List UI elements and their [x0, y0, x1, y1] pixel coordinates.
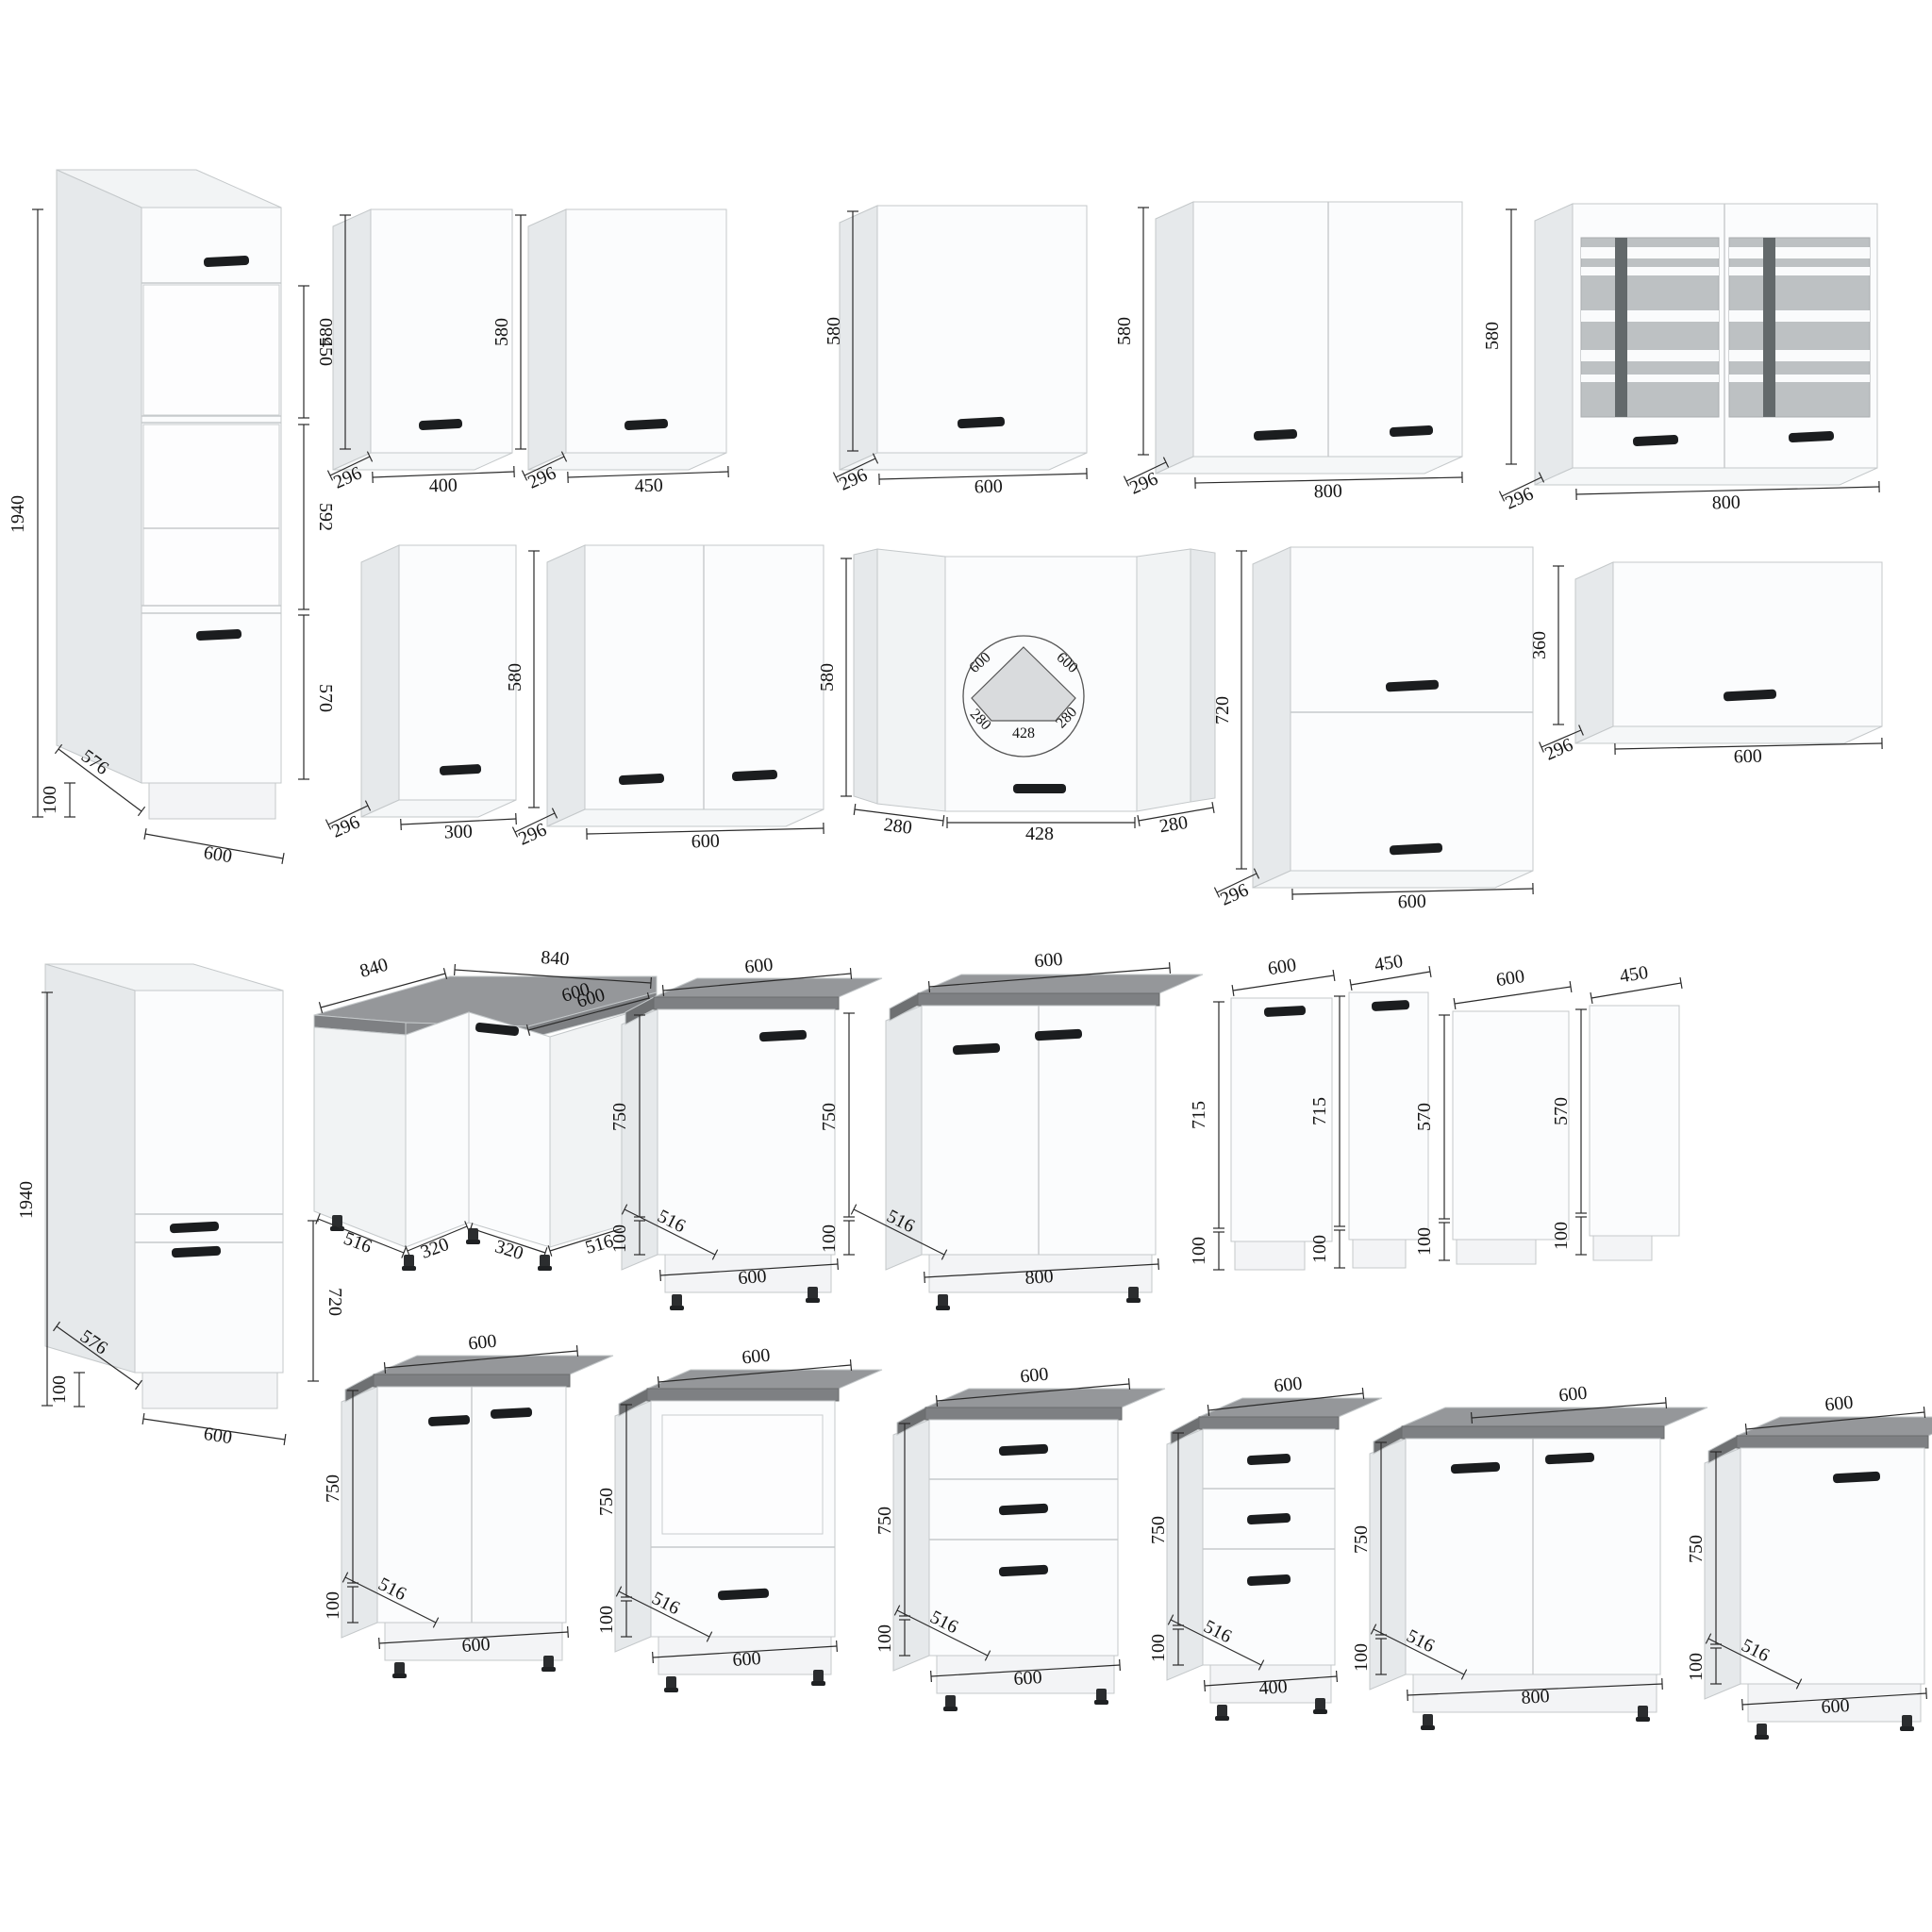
cabinet-face [1191, 549, 1215, 802]
end-panel-600-570: 570100600 [1414, 966, 1572, 1264]
base-cabinet-600-single-2: 750100516600600 [1686, 1392, 1932, 1740]
base-drawer-cabinet-600: 750100516600600 [874, 1364, 1165, 1711]
slat-detail [1581, 267, 1719, 275]
dimension-label: 100 [323, 1591, 343, 1620]
slat-detail [1729, 247, 1870, 258]
cabinet-face [854, 549, 877, 804]
glass-detail [1581, 238, 1719, 417]
worktop-front-edge [374, 1374, 570, 1387]
dimension-label: 600 [1495, 966, 1526, 991]
wall-cabinet-400: 580296400 [316, 209, 514, 497]
cabinet-leg [543, 1656, 554, 1668]
dimension-label: 600 [743, 955, 774, 978]
dimension-label: 720 [325, 1288, 345, 1316]
dimension-tick [401, 819, 402, 830]
dimension-tick [651, 977, 652, 989]
dimension-label: 580 [817, 663, 838, 691]
worktop-front-edge [654, 997, 839, 1009]
dimension-tick [850, 968, 851, 979]
worktop-front-edge [647, 1389, 839, 1401]
dimension-tick [1926, 1688, 1927, 1699]
cabinet-leg [1638, 1706, 1648, 1718]
dimension-label: 600 [691, 830, 720, 852]
slat-detail [1581, 375, 1719, 382]
panel-plinth-step [1235, 1241, 1305, 1270]
cabinet-leg [1423, 1714, 1433, 1726]
dimension-label: 720 [1212, 696, 1233, 724]
end-panel-450-570: 570100450 [1551, 962, 1682, 1260]
open-niche [662, 1415, 823, 1534]
panel-plinth-step [1593, 1236, 1652, 1260]
dimension-label: 100 [1189, 1237, 1209, 1265]
cabinet-leg-foot [1900, 1726, 1914, 1731]
dimension-label: 580 [1114, 317, 1135, 345]
dimension-label: 600 [1019, 1364, 1049, 1388]
cabinet-side-face [840, 206, 877, 470]
dimension-label: 600 [461, 1634, 491, 1657]
dimension-label: 600 [1267, 955, 1298, 979]
cabinet-side-face [1156, 202, 1193, 474]
door-handle [1372, 1000, 1409, 1011]
plan-dimension-label: 428 [1012, 725, 1035, 741]
cabinet-leg-foot [811, 1681, 825, 1686]
dimension-label: 100 [819, 1224, 840, 1253]
cabinet-side-face [1705, 1448, 1740, 1699]
cabinet-side-face [615, 1401, 651, 1652]
cabinet-leg [666, 1676, 676, 1689]
cabinet-leg [1096, 1689, 1107, 1701]
cabinet-leg [945, 1695, 956, 1707]
dimension-label: 450 [1374, 951, 1405, 975]
dimension-tick [1362, 1388, 1363, 1399]
cabinet-side-face [1167, 1429, 1203, 1680]
dimension-label: 570 [315, 684, 336, 712]
dimension-tick [576, 1345, 577, 1357]
slat-detail [1581, 310, 1719, 322]
cabinet-leg-foot [806, 1298, 820, 1303]
dimension-label: 600 [1013, 1667, 1042, 1690]
base-cabinet-800-double: 750100516800600 [819, 949, 1203, 1310]
worktop-front-edge [1199, 1417, 1339, 1429]
dimension-label: 100 [1351, 1643, 1372, 1672]
dimension-tick [1924, 1407, 1924, 1418]
dimension-label: 600 [467, 1331, 497, 1355]
dimension-tick [455, 964, 456, 975]
dimension-label: 580 [316, 318, 337, 346]
dimension-label: 100 [1551, 1222, 1572, 1250]
dimension-label: 428 [1025, 824, 1054, 844]
dimension-label: 600 [1821, 1695, 1850, 1718]
worktop-top-face [1402, 1407, 1707, 1426]
dimension-label: 800 [1521, 1686, 1550, 1708]
dimension-label: 715 [1309, 1097, 1330, 1125]
cabinet-bottom-face [547, 809, 824, 826]
panel-plinth-step [1457, 1240, 1536, 1264]
door-handle [1013, 784, 1066, 793]
dimension-tick [1120, 1659, 1121, 1671]
dimension-label: 715 [1189, 1101, 1209, 1129]
cabinet-face [877, 549, 945, 811]
cabinet-leg-foot [1755, 1735, 1769, 1740]
dimension-label: 580 [505, 663, 525, 691]
dimension-label: 600 [1733, 745, 1762, 767]
dimension-label: 840 [358, 955, 391, 982]
cabinet-side-face [1575, 562, 1613, 743]
worktop-top-face [1737, 1417, 1932, 1436]
dimension-tick [136, 1380, 142, 1390]
dimension-label: 750 [874, 1507, 895, 1535]
dimension-tick [851, 1205, 856, 1215]
base-drawer-cabinet-400: 750100516400600 [1148, 1374, 1382, 1721]
dimension-label: 840 [541, 947, 570, 970]
dimension-tick [1128, 1378, 1129, 1390]
dimension-label: 400 [428, 475, 458, 496]
dimension-label: 600 [738, 1266, 768, 1290]
cabinet-front-face [877, 206, 1087, 453]
worktop-front-edge [925, 1407, 1122, 1420]
dimension-label: 600 [974, 475, 1003, 497]
dimension-label: 100 [1148, 1634, 1169, 1662]
cabinet-leg [1315, 1698, 1325, 1710]
wall-cabinet-800-double: 580296800 [1114, 202, 1462, 503]
dimension-tick [924, 1272, 925, 1283]
cabinet-face [314, 1027, 406, 1247]
dimension-label: 1940 [16, 1181, 37, 1219]
wall-cabinet-600: 580296600 [824, 206, 1087, 498]
cabinet-side-face [893, 1420, 929, 1671]
stripe-detail [1763, 238, 1775, 417]
dimension-tick [660, 1270, 661, 1281]
dimension-label: 100 [1309, 1235, 1330, 1263]
dimension-label: 570 [1414, 1103, 1435, 1131]
cabinet-leg [938, 1294, 948, 1307]
dimension-tick [138, 807, 144, 816]
dimension-label: 750 [1148, 1516, 1169, 1544]
dimension-label: 320 [492, 1236, 525, 1264]
dimension-label: 750 [1686, 1535, 1707, 1563]
cabinet-leg-foot [402, 1266, 416, 1271]
dimension-label: 600 [1824, 1392, 1854, 1416]
cabinet-leg-foot [392, 1674, 407, 1678]
dimension-tick [1337, 1671, 1338, 1682]
dimension-label: 600 [732, 1648, 761, 1671]
dimension-label: 100 [609, 1224, 630, 1253]
dimension-tick [931, 1671, 932, 1682]
dimension-tick [850, 1359, 851, 1371]
cabinet-leg-foot [1313, 1709, 1327, 1714]
cabinet-bottom-face [1535, 468, 1877, 485]
cabinet-leg [1757, 1724, 1767, 1736]
dimension-tick [1742, 1699, 1743, 1710]
wall-cabinet-600-flap-360: 360296600 [1529, 562, 1882, 768]
dimension-label: 100 [596, 1606, 617, 1634]
cabinet-face [469, 1012, 550, 1247]
dimension-line [1591, 983, 1681, 998]
dimension-label: 100 [1414, 1227, 1435, 1256]
cabinet-side-face [45, 964, 135, 1373]
cabinet-leg-foot [466, 1240, 480, 1244]
open-niche [143, 425, 279, 606]
slat-detail [1729, 310, 1870, 322]
dimension-tick [379, 1638, 380, 1649]
cabinet-front-face [399, 545, 516, 800]
dimension-label: 570 [1551, 1097, 1572, 1125]
cabinet-front-face [566, 209, 726, 453]
dimension-label: 600 [741, 1345, 771, 1369]
dimension-label: 600 [202, 1424, 233, 1448]
cabinet-leg-foot [1094, 1700, 1108, 1705]
cabinet-leg [1217, 1705, 1227, 1717]
dimension-tick [838, 1258, 839, 1270]
wall-cabinet-corner-580: 600600280280428580280428280 [817, 549, 1215, 844]
base-cabinet-800-double-2: 750100516800600 [1351, 1383, 1707, 1730]
cabinet-leg-foot [538, 1266, 552, 1271]
cabinet-leg-foot [664, 1688, 678, 1692]
stripe-detail [1615, 238, 1627, 417]
dimension-label: 100 [49, 1375, 70, 1404]
wall-cabinet-300: 296300 [325, 545, 516, 843]
dimension-tick [854, 804, 856, 815]
cabinet-leg-foot [936, 1306, 950, 1310]
cabinet-leg-foot [1126, 1298, 1141, 1303]
cabinet-diagram: 1940450592570100576600580296400580296450… [0, 0, 1932, 1932]
wall-cabinet-600-flip-720: 720296600 [1212, 547, 1533, 913]
cabinet-front-face [1291, 547, 1533, 871]
dimension-tick [406, 1245, 410, 1256]
wall-cabinet-600-double: 580296600 [505, 545, 824, 853]
cabinet-side-face [361, 545, 399, 817]
cabinet-face [406, 1012, 469, 1247]
dimension-tick [1170, 962, 1171, 974]
dimension-label: 360 [1529, 631, 1550, 659]
slat-detail [1581, 247, 1719, 258]
dimension-label: 580 [1482, 322, 1503, 350]
dimension-tick [1666, 1397, 1667, 1408]
dimension-line [1455, 987, 1571, 1004]
cabinet-leg [394, 1662, 405, 1674]
dimension-label: 600 [1273, 1374, 1303, 1397]
base-oven-housing-600: 750100516600600 [596, 1345, 882, 1692]
cabinet-side-face [528, 209, 566, 470]
cabinet-face [1137, 549, 1191, 811]
dimension-label: 296 [1541, 734, 1575, 764]
tall-oven-housing-600: 1940450592570100576600 [8, 170, 336, 867]
dimension-label: 750 [323, 1474, 343, 1503]
cabinet-side-face [1253, 547, 1291, 888]
cabinet-leg [540, 1255, 550, 1267]
dimension-label: 600 [1397, 891, 1426, 912]
dimension-line [1233, 975, 1334, 991]
dimension-tick [1407, 1690, 1408, 1701]
cabinet-leg [404, 1255, 414, 1267]
dimension-label: 280 [883, 814, 913, 838]
cabinet-plinth [149, 783, 275, 819]
dimension-label: 592 [315, 503, 336, 531]
cabinet-leg [672, 1294, 682, 1307]
slat-detail [1729, 267, 1870, 275]
cabinet-front-face [135, 991, 283, 1373]
dimension-label: 800 [1024, 1266, 1054, 1289]
wall-cabinet-800-glass: 580296800 [1482, 204, 1879, 514]
slat-detail [1729, 375, 1870, 382]
cabinet-side-face [1370, 1439, 1406, 1690]
dimension-label: 600 [1557, 1383, 1588, 1407]
cabinet-leg-foot [670, 1306, 684, 1310]
dimension-label: 600 [1034, 949, 1064, 973]
dimension-label: 1940 [8, 495, 28, 533]
dimension-tick [516, 813, 517, 824]
worktop-front-edge [1737, 1436, 1928, 1448]
dimension-label: 450 [634, 475, 663, 496]
dimension-label: 580 [824, 317, 844, 345]
cabinet-leg-foot [1215, 1716, 1229, 1721]
dimension-label: 280 [1158, 812, 1190, 837]
cabinet-leg-foot [541, 1667, 556, 1672]
panel-plinth-step [1353, 1240, 1406, 1268]
cabinet-leg [1902, 1715, 1912, 1727]
cabinet-leg [808, 1287, 818, 1299]
dimension-label: 100 [1686, 1653, 1707, 1681]
slat-detail [1581, 350, 1719, 361]
base-cabinet-600-double: 750100516600600 [323, 1331, 613, 1678]
cabinet-side-face [341, 1387, 377, 1638]
cabinet-front-face [1613, 562, 1882, 726]
dimension-label: 750 [819, 1103, 840, 1131]
cabinet-side-face [57, 170, 142, 783]
cabinet-side-face [1535, 204, 1573, 485]
worktop-front-edge [1402, 1426, 1664, 1439]
cabinet-bottom-face [1253, 871, 1533, 888]
dimension-label: 296 [1502, 483, 1536, 513]
cabinet-leg [813, 1670, 824, 1682]
diagram-canvas: 1940450592570100576600580296400580296450… [0, 0, 1932, 1932]
cabinet-leg-foot [943, 1707, 958, 1711]
slat-detail [1729, 350, 1870, 361]
dimension-tick [568, 1626, 569, 1638]
dimension-label: 296 [1217, 879, 1251, 909]
cabinet-bottom-face [1156, 457, 1462, 474]
dimension-label: 600 [202, 842, 233, 867]
dimension-label: 296 [515, 819, 549, 849]
dimension-tick [1158, 1258, 1159, 1270]
dimension-tick [1662, 1678, 1663, 1690]
cabinet-side-face [333, 209, 371, 470]
dimension-label: 100 [874, 1624, 895, 1653]
dimension-label: 750 [1351, 1525, 1372, 1554]
dimension-label: 750 [609, 1103, 630, 1131]
base-cabinet-600-single: 750100516600600 [609, 955, 882, 1310]
panel-face [1590, 1006, 1679, 1236]
dimension-label: 580 [491, 318, 512, 346]
dimension-tick [1205, 1680, 1206, 1691]
cabinet-leg [1128, 1287, 1139, 1299]
glass-detail [1729, 238, 1870, 417]
dimension-label: 800 [1711, 491, 1740, 513]
dimension-label: 300 [443, 821, 473, 842]
dimension-label: 800 [1313, 480, 1342, 502]
dimension-label: 100 [40, 786, 60, 814]
wall-cabinet-450: 580296450 [491, 209, 728, 497]
cabinet-plinth [142, 1373, 277, 1408]
dimension-label: 296 [328, 811, 362, 841]
cabinet-bottom-face [1575, 726, 1882, 743]
dimension-label: 450 [1619, 962, 1650, 987]
cabinet-side-face [547, 545, 585, 826]
dimension-label: 400 [1258, 1676, 1288, 1699]
open-niche [143, 285, 279, 415]
dimension-tick [942, 815, 944, 826]
dimension-tick [837, 1641, 838, 1652]
dimension-line [1351, 972, 1430, 985]
dimension-tick [653, 1652, 654, 1663]
worktop-front-edge [918, 993, 1159, 1006]
tall-fridge-housing-600: 1940100720576600 [16, 964, 345, 1448]
cabinet-leg-foot [1421, 1725, 1435, 1730]
cabinet-leg-foot [1636, 1717, 1650, 1722]
dimension-label: 750 [596, 1488, 617, 1516]
